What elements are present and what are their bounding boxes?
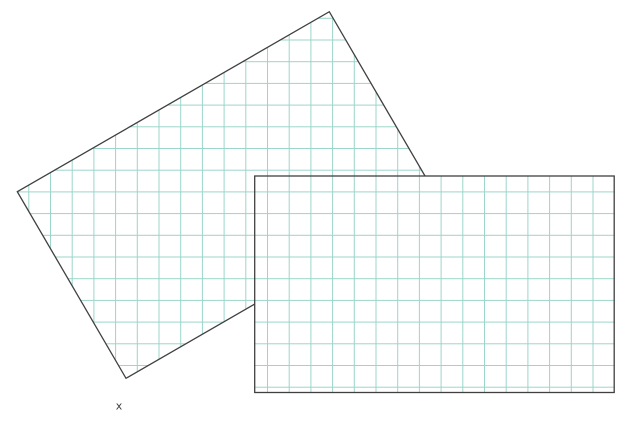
figure-svg: x bbox=[0, 0, 639, 428]
front-grid-rectangle-grid bbox=[255, 176, 615, 393]
x-marker: x bbox=[116, 400, 123, 413]
front-grid-rectangle bbox=[255, 176, 615, 393]
figure-canvas: x bbox=[0, 0, 639, 428]
